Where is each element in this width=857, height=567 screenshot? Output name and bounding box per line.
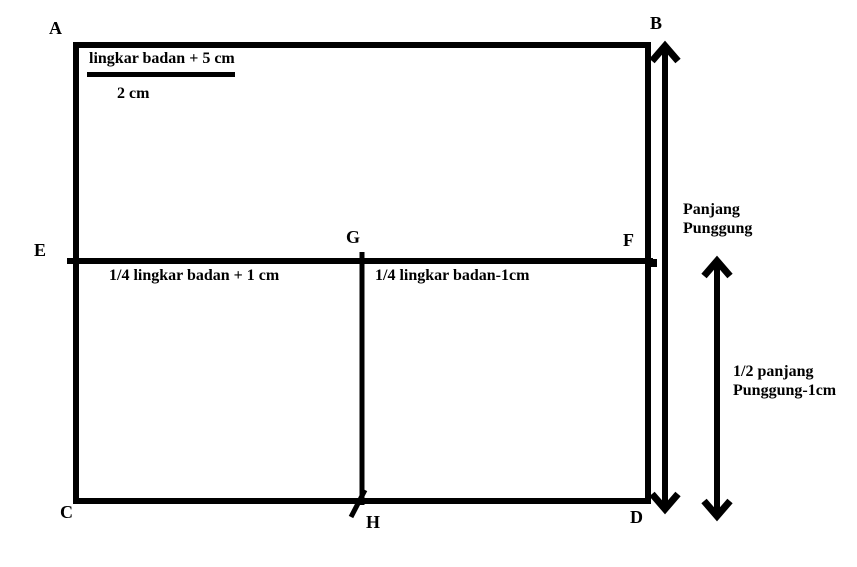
back-length-line1: Panjang [683, 200, 752, 219]
arrow-back-length [652, 46, 678, 509]
point-label-d: D [630, 507, 643, 527]
fraction-denominator: 2 cm [117, 84, 149, 103]
arrow-half-back-length [704, 261, 730, 516]
point-label-f: F [623, 230, 634, 250]
pattern-diagram: A B E G F C D H lingkar badan + 5 cm 2 c… [0, 0, 857, 567]
back-length-label: Panjang Punggung [683, 200, 752, 238]
point-label-a: A [49, 18, 62, 38]
point-label-c: C [60, 502, 73, 522]
left-section-label: 1/4 lingkar badan + 1 cm [109, 266, 279, 285]
point-label-g: G [346, 227, 360, 247]
fraction-bar [87, 72, 235, 77]
right-section-label: 1/4 lingkar badan-1cm [375, 266, 529, 285]
point-label-h: H [366, 512, 380, 532]
fraction-numerator: lingkar badan + 5 cm [89, 49, 235, 68]
half-back-length-label: 1/2 panjang Punggung-1cm [733, 362, 836, 400]
back-length-line2: Punggung [683, 219, 752, 238]
line-e-f-end-nub [648, 259, 657, 267]
half-back-length-line2: Punggung-1cm [733, 381, 836, 400]
point-label-e: E [34, 240, 46, 260]
point-label-b: B [650, 13, 662, 33]
half-back-length-line1: 1/2 panjang [733, 362, 836, 381]
